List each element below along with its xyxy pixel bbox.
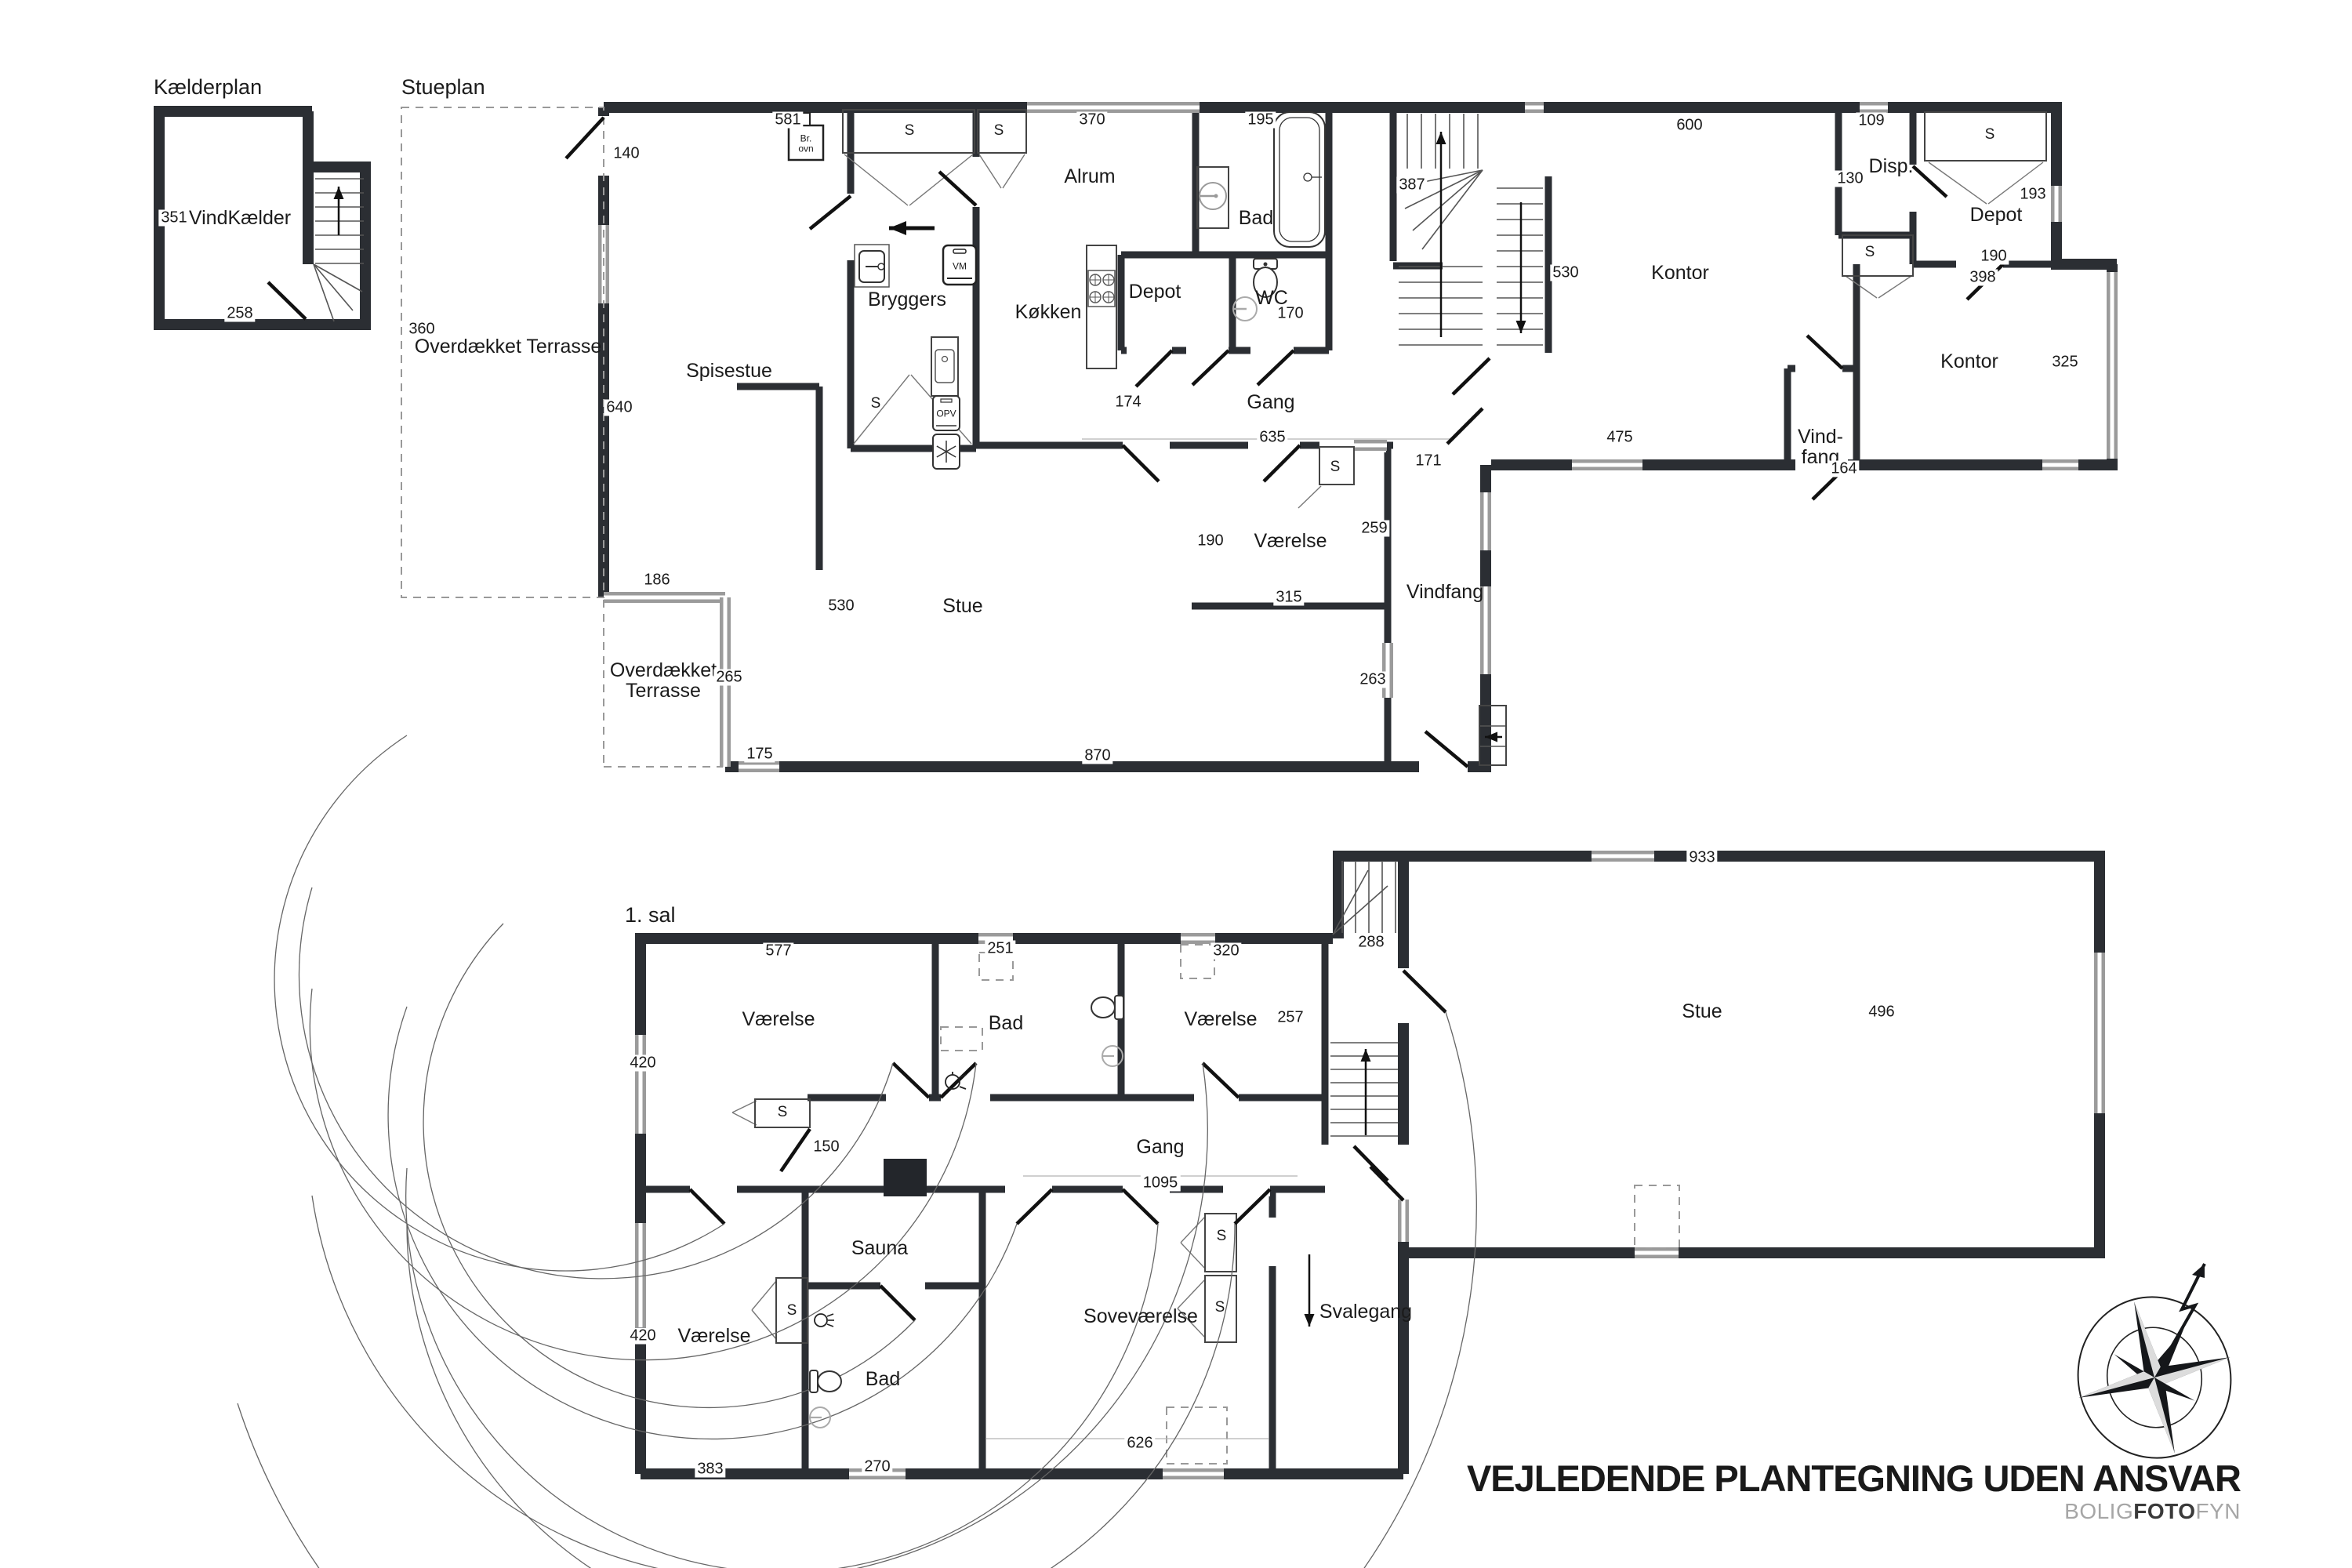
- room-label: Værelse: [1254, 531, 1327, 551]
- room-label: Disp.: [1869, 156, 1914, 176]
- dimension-label: 190: [1195, 533, 1225, 550]
- dimension-label: 398: [1967, 270, 1998, 286]
- dimension-label: 320: [1210, 943, 1241, 960]
- room-label: Gang: [1136, 1137, 1184, 1157]
- symbol-label: S: [787, 1303, 797, 1319]
- dimension-label: 626: [1124, 1436, 1155, 1452]
- dimension-label: 251: [985, 941, 1015, 957]
- labels-layer: Kælderplan Stueplan 1. sal VindKælder351…: [0, 0, 2352, 1568]
- room-label: Bad: [989, 1013, 1023, 1033]
- dimension-label: 383: [695, 1461, 725, 1478]
- dimension-label: 351: [158, 210, 189, 227]
- ground-title: Stueplan: [401, 75, 485, 100]
- disclaimer-text: VEJLEDENDE PLANTEGNING UDEN ANSVAR: [1467, 1457, 2241, 1500]
- brand-bolig: BOLIG: [2064, 1499, 2133, 1523]
- symbol-label: VM: [953, 262, 967, 272]
- dimension-label: 193: [2017, 187, 2048, 203]
- dimension-label: 600: [1674, 118, 1704, 134]
- room-label: Værelse: [1184, 1009, 1257, 1029]
- floorplan-page: Kælderplan Stueplan 1. sal VindKælder351…: [0, 0, 2352, 1568]
- symbol-label: S: [1217, 1229, 1227, 1244]
- dimension-label: 174: [1112, 394, 1143, 411]
- dimension-label: 140: [611, 146, 641, 162]
- basement-title: Kælderplan: [154, 75, 262, 100]
- room-label: Køkken: [1015, 302, 1082, 322]
- dimension-label: 195: [1245, 112, 1276, 129]
- dimension-label: 150: [811, 1139, 841, 1156]
- room-label: Alrum: [1064, 166, 1115, 187]
- brand-fyn: FYN: [2196, 1499, 2241, 1523]
- dimension-label: 325: [2049, 354, 2080, 371]
- dimension-label: 263: [1357, 672, 1388, 688]
- room-label: Overdækket Terrasse: [610, 660, 717, 702]
- dimension-label: 530: [826, 598, 856, 615]
- room-label: Bryggers: [868, 289, 946, 310]
- symbol-label: S: [905, 123, 915, 139]
- symbol-label: Br. ovn: [798, 133, 813, 153]
- dimension-label: 109: [1856, 113, 1886, 129]
- dimension-label: 259: [1359, 521, 1389, 537]
- room-label: Sauna: [851, 1238, 908, 1258]
- room-label: Stue: [942, 596, 982, 616]
- room-label: Svalegang: [1319, 1301, 1412, 1322]
- room-label: Kontor: [1651, 263, 1709, 283]
- dimension-label: 190: [1978, 249, 2009, 265]
- dimension-label: 257: [1275, 1010, 1305, 1026]
- dimension-label: 635: [1257, 430, 1287, 446]
- dimension-label: 186: [641, 572, 672, 589]
- symbol-label: S: [1985, 127, 1995, 143]
- dimension-label: 170: [1275, 306, 1305, 322]
- dimension-label: 265: [713, 670, 744, 686]
- dimension-label: 581: [772, 112, 803, 129]
- room-label: Værelse: [742, 1009, 815, 1029]
- dimension-label: 870: [1082, 748, 1112, 764]
- room-label: Bad: [1239, 208, 1273, 228]
- dimension-label: 420: [627, 1055, 658, 1072]
- room-label: Depot: [1970, 205, 2023, 225]
- dimension-label: 360: [406, 321, 437, 338]
- room-label: Soveværelse: [1083, 1306, 1198, 1327]
- symbol-label: S: [778, 1105, 788, 1120]
- room-label: Gang: [1247, 392, 1294, 412]
- symbol-label: S: [871, 396, 881, 412]
- dimension-label: 420: [627, 1328, 658, 1345]
- dimension-label: 270: [862, 1459, 892, 1475]
- dimension-label: 577: [763, 943, 793, 960]
- room-label: Vindfang: [1406, 582, 1483, 602]
- dimension-label: 370: [1076, 112, 1107, 129]
- room-label: Overdækket Terrasse: [415, 336, 602, 357]
- dimension-label: 640: [604, 400, 634, 416]
- dimension-label: 258: [224, 306, 255, 322]
- room-label: Kontor: [1940, 351, 1998, 372]
- first-floor-title: 1. sal: [625, 903, 676, 927]
- dimension-label: 496: [1866, 1004, 1896, 1021]
- dimension-label: 171: [1413, 453, 1443, 470]
- brand-logo: BOLIGFOTOFYN: [2064, 1499, 2241, 1524]
- symbol-label: OPV: [936, 409, 956, 419]
- room-label: Værelse: [677, 1326, 750, 1346]
- dimension-label: 315: [1273, 590, 1304, 606]
- symbol-label: S: [1215, 1300, 1225, 1316]
- symbol-label: S: [994, 123, 1004, 139]
- dimension-label: 130: [1835, 171, 1865, 187]
- brand-foto: FOTO: [2133, 1499, 2195, 1523]
- dimension-label: 164: [1828, 461, 1859, 477]
- room-label: Stue: [1682, 1001, 1722, 1022]
- room-label: Bad: [866, 1369, 900, 1389]
- dimension-label: 530: [1550, 265, 1581, 281]
- symbol-label: S: [1865, 245, 1875, 260]
- dimension-label: 933: [1686, 850, 1717, 866]
- room-label: Spisestue: [686, 361, 772, 381]
- dimension-label: 175: [744, 746, 775, 763]
- room-label: VindKælder: [189, 208, 291, 228]
- dimension-label: 1095: [1141, 1175, 1181, 1192]
- dimension-label: 387: [1396, 177, 1427, 194]
- symbol-label: S: [1330, 459, 1341, 475]
- dimension-label: 475: [1604, 430, 1635, 446]
- room-label: Depot: [1129, 281, 1181, 302]
- dimension-label: 288: [1356, 935, 1386, 951]
